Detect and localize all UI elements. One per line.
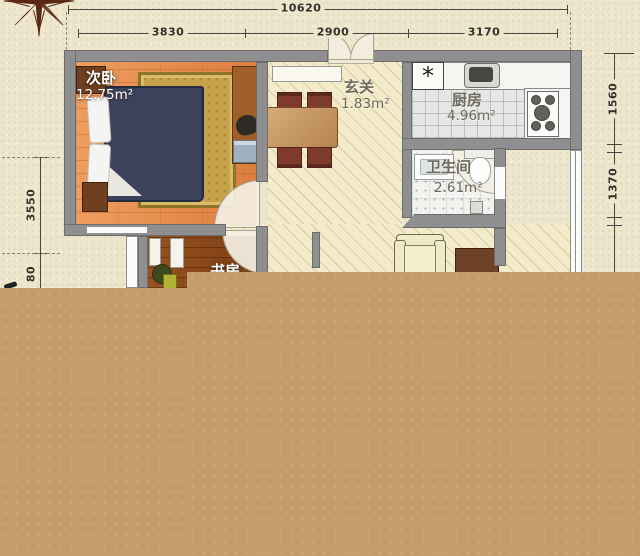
compass-icon (2, 0, 76, 38)
dim-tick (607, 152, 622, 153)
dim-line-left (40, 157, 41, 288)
wall-bedroom-right (256, 62, 268, 182)
dim-label-total: 10620 (278, 2, 325, 15)
wall-bath-bottom (402, 214, 506, 228)
stove-burner (531, 121, 541, 131)
floor-drain (470, 201, 483, 214)
dining-chair (277, 147, 302, 168)
dim-extension (570, 12, 571, 50)
dim-label-segment: 3170 (465, 26, 504, 39)
dim-tick (68, 5, 69, 14)
floor-plan-canvas: * 次卧 12.75m² 玄关 1.83m² 厨房 4.96m² 卫生间 (0, 0, 640, 556)
wall-stub-below-bath (494, 228, 506, 266)
wall-left (64, 50, 76, 236)
armchair-seat (404, 245, 436, 274)
hall-label: 玄关 (344, 76, 374, 97)
bathroom-label: 卫生间 (426, 156, 471, 177)
dim-tick (567, 5, 568, 14)
bathroom-door-window (494, 166, 506, 200)
dim-tick (78, 29, 79, 38)
wall-right-top (570, 50, 582, 150)
wall-bath-top (402, 138, 582, 150)
kitchen-appliance-block: * (412, 62, 444, 90)
wall-top-left (64, 50, 328, 62)
stove-burner (545, 121, 555, 131)
nightstand (82, 182, 108, 212)
dim-extension (2, 157, 60, 158)
wall-study-left (138, 236, 148, 288)
hall-area-label: 1.83m² (341, 96, 390, 112)
dining-chair (307, 147, 332, 168)
dim-extension (66, 12, 67, 50)
dim-extension (2, 253, 60, 254)
right-wall-window (570, 150, 582, 274)
dim-label-left: 3550 (25, 186, 38, 225)
dining-table (266, 107, 338, 148)
kitchen-area-label: 4.96m² (447, 108, 496, 124)
dim-tick (408, 29, 409, 38)
dim-label-right: 1560 (607, 80, 620, 119)
kitchen-label: 厨房 (452, 89, 482, 110)
hall-shelf (272, 66, 342, 82)
dim-tick (245, 29, 246, 38)
dim-tick (607, 225, 622, 226)
stove-burner (531, 95, 541, 105)
dim-label-right: 1370 (607, 165, 620, 204)
dim-label-segment: 3830 (149, 26, 188, 39)
plant-pot (163, 274, 177, 289)
entrance-door-leaf-right (350, 33, 374, 60)
bedroom-label: 次卧 (86, 67, 116, 88)
dim-tick (557, 29, 558, 38)
bedroom-area-label: 12.75m² (76, 87, 133, 103)
wall-stub-corridor (312, 232, 320, 268)
dim-tick (607, 144, 622, 145)
dim-label-left: 80 (25, 263, 38, 285)
cover-block-right (187, 272, 640, 556)
dim-tick (604, 53, 634, 54)
bathroom-area-label: 2.61m² (434, 180, 483, 196)
kitchen-sink-basin (469, 67, 493, 82)
pillow (86, 96, 111, 143)
bedroom-window (86, 226, 148, 234)
dim-tick (607, 217, 622, 218)
study-cabinet (149, 238, 161, 266)
stove-burner (534, 105, 550, 121)
cover-block-left (0, 288, 187, 556)
wall-top-right (372, 50, 582, 62)
study-cabinet (170, 238, 184, 268)
study-window (126, 236, 138, 288)
dim-label-segment: 2900 (314, 26, 353, 39)
stove-burner (545, 95, 555, 105)
